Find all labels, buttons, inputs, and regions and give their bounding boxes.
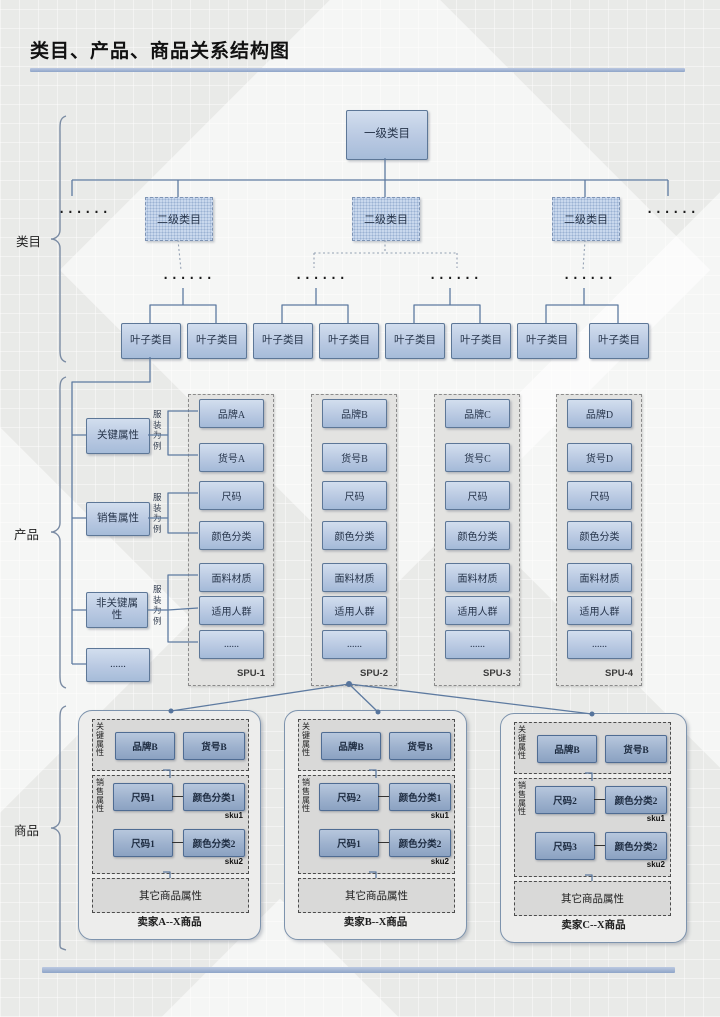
spu-attr-item: 尺码 (567, 481, 632, 510)
sku-pair-connector (172, 796, 183, 797)
spu-attr-item: ...... (567, 630, 632, 659)
spu-label: SPU-1 (237, 668, 265, 679)
leaf-category-node: 叶子类目 (517, 323, 577, 359)
sku-id-label: sku1 (647, 814, 665, 823)
level2-category-node: 二级类目 (552, 197, 620, 241)
seller-card: 关键属性 品牌B 货号B 销售属性 尺码2 颜色分类2 sku1 尺码3 颜色分… (500, 713, 687, 943)
seller-name-label: 卖家A--X商品 (79, 914, 260, 929)
product-section-label: 产品 (14, 524, 39, 543)
leaf-category-node: 叶子类目 (253, 323, 313, 359)
nonkey-attributes-node: 非关键属性 (86, 592, 148, 628)
spu-attr-item: 尺码 (322, 481, 387, 510)
seller-other-attrs-box: 其它商品属性 (298, 878, 455, 913)
spu-attr-item: 适用人群 (567, 596, 632, 625)
sku-size-box: 尺码3 (535, 832, 595, 860)
level2-category-node: 二级类目 (145, 197, 213, 241)
sku-color-box: 颜色分类1 (183, 783, 245, 811)
spu-attr-item: 颜色分类 (199, 521, 264, 550)
seller-key-attrs-group: 关键属性 品牌B 货号B (514, 722, 671, 774)
seller-name-label: 卖家B--X商品 (285, 914, 466, 929)
sku-id-label: sku2 (647, 860, 665, 869)
key-attrs-vertical-label: 关键属性 (96, 723, 106, 758)
spu-attr-item: 颜色分类 (322, 521, 387, 550)
page-title: 类目、产品、商品关系结构图 (30, 36, 290, 63)
root-category-node: 一级类目 (346, 110, 428, 160)
seller-sales-attrs-group: 销售属性 尺码2 颜色分类1 sku1 尺码1 颜色分类2 sku2 (298, 775, 455, 874)
ellipsis-more-subcategories: ...... (162, 268, 214, 282)
spu-attr-item: 面料材质 (445, 563, 510, 592)
spu-attr-item: 货号C (445, 443, 510, 472)
spu-attr-item: 面料材质 (322, 563, 387, 592)
seller-other-attrs-box: 其它商品属性 (514, 881, 671, 916)
sku-size-box: 尺码2 (535, 786, 595, 814)
sku-id-label: sku2 (225, 857, 243, 866)
sku-id-label: sku1 (431, 811, 449, 820)
seller-other-attrs-box: 其它商品属性 (92, 878, 249, 913)
sku-pair-connector (594, 799, 605, 800)
sku-color-box: 颜色分类1 (389, 783, 451, 811)
spu-label: SPU-4 (605, 668, 633, 679)
sku-color-box: 颜色分类2 (389, 829, 451, 857)
spu-attr-item: ...... (322, 630, 387, 659)
diagram-canvas: 类目、产品、商品关系结构图 (0, 0, 720, 1017)
leaf-category-node: 叶子类目 (187, 323, 247, 359)
sku-pair-connector (378, 842, 389, 843)
leaf-category-node: 叶子类目 (451, 323, 511, 359)
ellipsis-more-subcategories: ...... (563, 268, 615, 282)
ellipsis-more-categories: ...... (646, 202, 698, 216)
seller-card: 关键属性 品牌B 货号B 销售属性 尺码1 颜色分类1 sku1 尺码1 颜色分… (78, 710, 261, 940)
spu-attr-item: 品牌B (322, 399, 387, 428)
spu-attr-item: 面料材质 (199, 563, 264, 592)
seller-itemno-box: 货号B (183, 732, 245, 760)
sku-id-label: sku1 (225, 811, 243, 820)
sku-color-box: 颜色分类2 (183, 829, 245, 857)
leaf-category-node: 叶子类目 (589, 323, 649, 359)
clothing-example-note: 服装为例 (153, 584, 164, 627)
key-attrs-vertical-label: 关键属性 (518, 726, 528, 761)
sku-color-box: 颜色分类2 (605, 832, 667, 860)
seller-card: 关键属性 品牌B 货号B 销售属性 尺码2 颜色分类1 sku1 尺码1 颜色分… (284, 710, 467, 940)
spu-attr-item: 适用人群 (445, 596, 510, 625)
clothing-example-note: 服装为例 (153, 409, 164, 452)
key-attributes-node: 关键属性 (86, 418, 150, 454)
ellipsis-more-categories: ...... (58, 202, 110, 216)
sales-attrs-vertical-label: 销售属性 (96, 779, 106, 814)
seller-brand-box: 品牌B (321, 732, 381, 760)
spu-attr-item: 货号D (567, 443, 632, 472)
sku-size-box: 尺码2 (319, 783, 379, 811)
spu-column: 品牌D 货号D 尺码 颜色分类 面料材质 适用人群 ...... SPU-4 (556, 394, 642, 686)
footer-bar (42, 967, 675, 973)
sku-size-box: 尺码1 (113, 829, 173, 857)
sku-pair-connector (594, 845, 605, 846)
spu-attr-item: 货号A (199, 443, 264, 472)
sales-attrs-vertical-label: 销售属性 (302, 779, 312, 814)
level2-category-node: 二级类目 (352, 197, 420, 241)
spu-attr-item: ...... (445, 630, 510, 659)
sku-pair-connector (378, 796, 389, 797)
category-section-label: 类目 (16, 231, 41, 250)
spu-attr-item: 尺码 (199, 481, 264, 510)
spu-label: SPU-2 (360, 668, 388, 679)
ellipsis-more-subcategories: ...... (429, 268, 481, 282)
spu-attr-item: 尺码 (445, 481, 510, 510)
seller-itemno-box: 货号B (605, 735, 667, 763)
spu-attr-item: 颜色分类 (445, 521, 510, 550)
spu-attr-item: 适用人群 (322, 596, 387, 625)
clothing-example-note: 服装为例 (153, 492, 164, 535)
category-brace (51, 116, 66, 362)
sku-size-box: 尺码1 (113, 783, 173, 811)
seller-key-attrs-group: 关键属性 品牌B 货号B (298, 719, 455, 771)
spu-attr-item: ...... (199, 630, 264, 659)
spu-attr-item: 货号B (322, 443, 387, 472)
spu-column: 品牌C 货号C 尺码 颜色分类 面料材质 适用人群 ...... SPU-3 (434, 394, 520, 686)
spu-column: 品牌A 货号A 尺码 颜色分类 面料材质 适用人群 ...... SPU-1 (188, 394, 274, 686)
spu-column: 品牌B 货号B 尺码 颜色分类 面料材质 适用人群 ...... SPU-2 (311, 394, 397, 686)
commodity-section-label: 商品 (14, 820, 39, 839)
spu-attr-item: 面料材质 (567, 563, 632, 592)
seller-name-label: 卖家C--X商品 (501, 917, 686, 932)
sales-attributes-node: 销售属性 (86, 502, 150, 536)
seller-key-attrs-group: 关键属性 品牌B 货号B (92, 719, 249, 771)
sku-id-label: sku2 (431, 857, 449, 866)
seller-itemno-box: 货号B (389, 732, 451, 760)
sku-pair-connector (172, 842, 183, 843)
seller-brand-box: 品牌B (537, 735, 597, 763)
spu-attr-item: 品牌D (567, 399, 632, 428)
ellipsis-attributes-node: ...... (86, 648, 150, 682)
spu-attr-item: 品牌A (199, 399, 264, 428)
seller-sales-attrs-group: 销售属性 尺码1 颜色分类1 sku1 尺码1 颜色分类2 sku2 (92, 775, 249, 874)
spu-attr-item: 颜色分类 (567, 521, 632, 550)
seller-sales-attrs-group: 销售属性 尺码2 颜色分类2 sku1 尺码3 颜色分类2 sku2 (514, 778, 671, 877)
title-underline (30, 68, 685, 72)
seller-brand-box: 品牌B (115, 732, 175, 760)
ellipsis-more-subcategories: ...... (295, 268, 347, 282)
sku-color-box: 颜色分类2 (605, 786, 667, 814)
leaf-category-node: 叶子类目 (319, 323, 379, 359)
spu-label: SPU-3 (483, 668, 511, 679)
sku-size-box: 尺码1 (319, 829, 379, 857)
spu-attr-item: 适用人群 (199, 596, 264, 625)
sales-attrs-vertical-label: 销售属性 (518, 782, 528, 817)
leaf-category-node: 叶子类目 (385, 323, 445, 359)
leaf-category-node: 叶子类目 (121, 323, 181, 359)
spu-attr-item: 品牌C (445, 399, 510, 428)
key-attrs-vertical-label: 关键属性 (302, 723, 312, 758)
